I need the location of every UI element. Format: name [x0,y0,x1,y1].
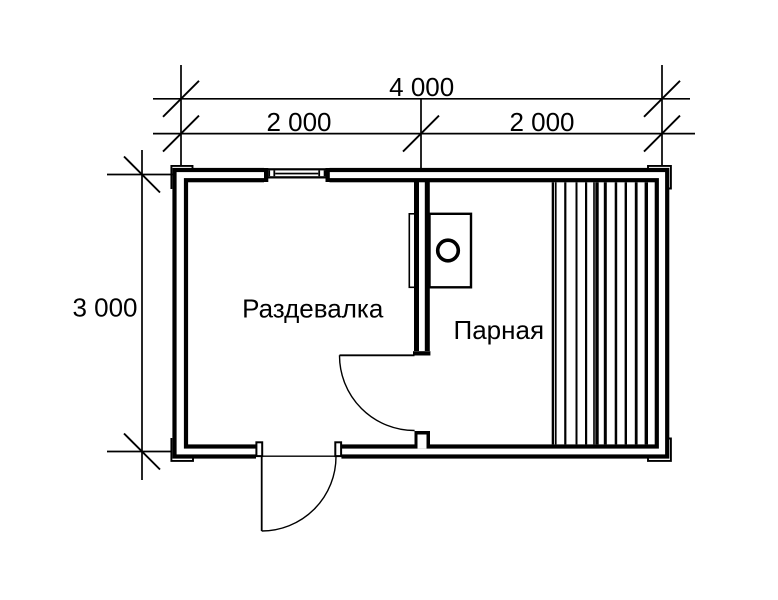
svg-text:2 000: 2 000 [509,107,574,137]
svg-text:4 000: 4 000 [389,72,454,102]
svg-text:3 000: 3 000 [72,292,137,322]
svg-text:Раздевалка: Раздевалка [242,293,384,323]
svg-text:2 000: 2 000 [266,107,331,137]
svg-text:Парная: Парная [454,315,545,345]
